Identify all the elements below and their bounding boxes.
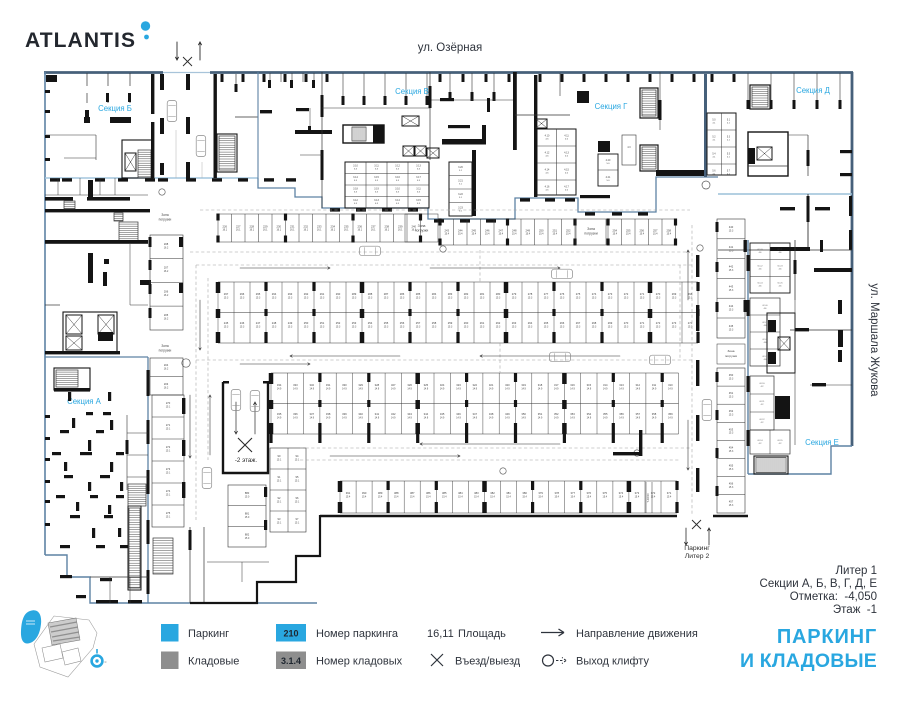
svg-text:15.3: 15.3 <box>672 298 677 300</box>
svg-text:281: 281 <box>480 292 485 296</box>
svg-text:15.3: 15.3 <box>336 298 341 300</box>
svg-text:16.2: 16.2 <box>164 271 169 273</box>
svg-text:311: 311 <box>652 383 657 387</box>
svg-text:15.0: 15.0 <box>245 497 250 499</box>
svg-text:375: 375 <box>603 491 608 495</box>
svg-text:15.3: 15.3 <box>352 327 357 329</box>
svg-text:442: 442 <box>729 265 734 269</box>
svg-text:Номер кладовых: Номер кладовых <box>316 656 403 668</box>
svg-text:15.3: 15.3 <box>336 327 341 329</box>
svg-text:278: 278 <box>528 292 533 296</box>
svg-text:15.4: 15.4 <box>566 233 571 236</box>
svg-text:248: 248 <box>272 321 277 325</box>
svg-text:15.3: 15.3 <box>352 298 357 300</box>
svg-text:3.21: 3.21 <box>458 180 463 183</box>
svg-text:15.3: 15.3 <box>416 298 421 300</box>
svg-text:386: 386 <box>426 491 431 495</box>
svg-text:15.1: 15.1 <box>277 523 282 525</box>
svg-text:342: 342 <box>391 412 396 416</box>
svg-text:206: 206 <box>164 289 169 293</box>
svg-text:267: 267 <box>576 321 581 325</box>
svg-text:323: 323 <box>456 383 461 387</box>
svg-text:15.3: 15.3 <box>729 415 734 417</box>
svg-text:15.3: 15.3 <box>640 298 645 300</box>
svg-text:4.12: 4.12 <box>545 152 550 155</box>
svg-text:16.1: 16.1 <box>357 229 362 232</box>
svg-text:347: 347 <box>473 412 478 416</box>
svg-text:15.4: 15.4 <box>539 233 544 236</box>
svg-text:291: 291 <box>320 292 325 296</box>
svg-text:15.4: 15.4 <box>471 233 476 236</box>
svg-text:3.20: 3.20 <box>458 166 463 169</box>
svg-text:15.3: 15.3 <box>544 327 549 329</box>
svg-text:444: 444 <box>729 304 734 308</box>
svg-text:Паркинг: Паркинг <box>188 628 229 640</box>
svg-text:15.4: 15.4 <box>474 497 479 499</box>
svg-text:274: 274 <box>592 292 597 296</box>
svg-text:451: 451 <box>729 391 734 395</box>
svg-text:16.1: 16.1 <box>222 229 227 232</box>
svg-text:15.3: 15.3 <box>544 298 549 300</box>
svg-text:275: 275 <box>166 511 171 515</box>
svg-text:15.4: 15.4 <box>410 497 415 499</box>
svg-text:320: 320 <box>505 383 510 387</box>
svg-text:15.3: 15.3 <box>656 327 661 329</box>
svg-text:15.3: 15.3 <box>416 327 421 329</box>
svg-text:14.9: 14.9 <box>424 389 429 391</box>
svg-text:335: 335 <box>277 412 282 416</box>
svg-text:погрузки: погрузки <box>159 349 172 353</box>
svg-text:4.13: 4.13 <box>564 152 569 155</box>
svg-text:15.3: 15.3 <box>656 298 661 300</box>
svg-text:379: 379 <box>538 491 543 495</box>
svg-text:292: 292 <box>304 292 309 296</box>
svg-text:Зона: Зона <box>161 344 168 348</box>
svg-text:15.4: 15.4 <box>442 497 447 499</box>
svg-text:455: 455 <box>729 464 734 468</box>
svg-text:14.9: 14.9 <box>668 418 673 420</box>
svg-text:15.3: 15.3 <box>448 327 453 329</box>
svg-text:285: 285 <box>416 292 421 296</box>
svg-text:ПАРКИНГ: ПАРКИНГ <box>777 626 877 648</box>
svg-text:15.4: 15.4 <box>506 497 511 499</box>
svg-text:15.4: 15.4 <box>603 497 608 499</box>
svg-text:391: 391 <box>346 491 351 495</box>
svg-text:259: 259 <box>448 321 453 325</box>
svg-text:14.9: 14.9 <box>554 418 559 420</box>
svg-text:6.1.6: 6.1.6 <box>763 305 769 307</box>
svg-text:16.1: 16.1 <box>384 229 389 232</box>
svg-text:16.1: 16.1 <box>290 229 295 232</box>
svg-text:14.9: 14.9 <box>587 418 592 420</box>
svg-text:15.3: 15.3 <box>464 298 469 300</box>
svg-text:204: 204 <box>164 363 169 367</box>
svg-text:445: 445 <box>729 324 734 328</box>
svg-text:269: 269 <box>608 321 613 325</box>
svg-text:15.3: 15.3 <box>729 310 734 312</box>
svg-text:15.3: 15.3 <box>272 327 277 329</box>
svg-text:310: 310 <box>668 383 673 387</box>
svg-text:16.1: 16.1 <box>249 229 254 232</box>
svg-text:358: 358 <box>652 412 657 416</box>
svg-text:15.1: 15.1 <box>166 473 171 475</box>
svg-text:Секции А, Б, В, Г, Д, Е: Секции А, Б, В, Г, Д, Е <box>760 578 878 590</box>
svg-text:284: 284 <box>432 292 437 296</box>
svg-text:14.9: 14.9 <box>538 389 543 391</box>
svg-text:15.4: 15.4 <box>512 233 517 236</box>
svg-text:Выход клифту: Выход клифту <box>576 656 649 668</box>
svg-text:14.9: 14.9 <box>603 389 608 391</box>
svg-text:294: 294 <box>272 292 277 296</box>
svg-text:289: 289 <box>352 292 357 296</box>
svg-text:Секция Д: Секция Д <box>796 86 831 95</box>
svg-text:3.18: 3.18 <box>353 188 358 191</box>
svg-text:334: 334 <box>277 383 282 387</box>
svg-text:340: 340 <box>358 412 363 416</box>
svg-text:313: 313 <box>619 383 624 387</box>
svg-text:288: 288 <box>368 292 373 296</box>
svg-text:4.14: 4.14 <box>545 169 550 172</box>
svg-text:15.0: 15.0 <box>245 538 250 540</box>
svg-text:276: 276 <box>560 292 565 296</box>
svg-text:15.3: 15.3 <box>608 298 613 300</box>
svg-text:14.9: 14.9 <box>489 418 494 420</box>
svg-text:14.9: 14.9 <box>636 418 641 420</box>
svg-text:6.1.0: 6.1.0 <box>758 249 764 251</box>
svg-text:14.9: 14.9 <box>538 418 543 420</box>
svg-text:15.4: 15.4 <box>426 497 431 499</box>
svg-text:325: 325 <box>424 383 429 387</box>
svg-text:15.1: 15.1 <box>166 495 171 497</box>
svg-text:16.1: 16.1 <box>236 229 241 232</box>
svg-text:15.3: 15.3 <box>368 327 373 329</box>
svg-text:14.9: 14.9 <box>293 418 298 420</box>
svg-text:погрузки: погрузки <box>584 232 598 236</box>
svg-text:266: 266 <box>560 321 565 325</box>
svg-text:3.16: 3.16 <box>395 176 400 179</box>
svg-text:14.9: 14.9 <box>505 389 510 391</box>
svg-text:4.21: 4.21 <box>606 176 611 179</box>
svg-text:205: 205 <box>164 313 169 317</box>
svg-text:15.3: 15.3 <box>640 327 645 329</box>
svg-text:260: 260 <box>464 321 469 325</box>
svg-text:384: 384 <box>458 491 463 495</box>
svg-text:207: 207 <box>164 266 169 270</box>
svg-text:261: 261 <box>480 321 485 325</box>
svg-text:Номер паркинга: Номер паркинга <box>316 628 399 640</box>
svg-text:14.9: 14.9 <box>587 389 592 391</box>
svg-text:15.3: 15.3 <box>480 327 485 329</box>
svg-text:312: 312 <box>636 383 641 387</box>
svg-text:254: 254 <box>368 321 373 325</box>
svg-text:15.3: 15.3 <box>672 327 677 329</box>
svg-text:3.12: 3.12 <box>395 165 400 168</box>
svg-text:283: 283 <box>448 292 453 296</box>
svg-text:16.2: 16.2 <box>164 248 169 250</box>
svg-text:344: 344 <box>424 412 429 416</box>
svg-text:270: 270 <box>166 401 171 405</box>
svg-text:3.13: 3.13 <box>416 165 421 168</box>
svg-text:203: 203 <box>164 382 169 386</box>
svg-text:324: 324 <box>440 383 445 387</box>
svg-text:Направление движения: Направление движения <box>576 628 698 640</box>
svg-text:6.1.2: 6.1.2 <box>758 266 764 268</box>
svg-text:Въезд/выезд: Въезд/выезд <box>455 656 521 668</box>
svg-text:15.3: 15.3 <box>288 298 293 300</box>
svg-text:452: 452 <box>729 409 734 413</box>
svg-text:4.17: 4.17 <box>564 186 569 189</box>
svg-text:372: 372 <box>651 491 656 495</box>
svg-text:Т-ХОЗО: Т-ХОЗО <box>647 493 650 502</box>
svg-text:Зона: Зона <box>418 224 426 228</box>
svg-text:381: 381 <box>506 491 511 495</box>
svg-text:Площадь: Площадь <box>458 628 506 640</box>
svg-text:погрузки: погрузки <box>159 218 172 222</box>
svg-text:Этаж -1: Этаж -1 <box>833 604 877 616</box>
svg-text:15.3: 15.3 <box>304 327 309 329</box>
svg-text:328: 328 <box>375 383 380 387</box>
svg-text:Литер 2: Литер 2 <box>685 553 710 560</box>
svg-text:265: 265 <box>544 321 549 325</box>
svg-text:262: 262 <box>496 321 501 325</box>
svg-text:345: 345 <box>440 412 445 416</box>
svg-text:15.1: 15.1 <box>295 460 300 462</box>
svg-text:380: 380 <box>522 491 527 495</box>
svg-text:14.9: 14.9 <box>619 418 624 420</box>
svg-text:15.3: 15.3 <box>729 433 734 435</box>
svg-text:336: 336 <box>293 412 298 416</box>
svg-text:257: 257 <box>416 321 421 325</box>
svg-text:371: 371 <box>667 491 672 495</box>
svg-text:4.15: 4.15 <box>564 169 569 172</box>
svg-text:16.1: 16.1 <box>398 229 403 232</box>
svg-text:880: 880 <box>245 491 250 495</box>
svg-text:881: 881 <box>245 512 250 516</box>
svg-text:14.9: 14.9 <box>489 389 494 391</box>
svg-text:354: 354 <box>587 412 592 416</box>
svg-text:3.13: 3.13 <box>374 199 379 202</box>
svg-text:Зона: Зона <box>727 349 734 353</box>
svg-text:15.1: 15.1 <box>166 407 171 409</box>
svg-text:15.4: 15.4 <box>490 497 495 499</box>
svg-text:6.2.5: 6.2.5 <box>778 440 784 442</box>
svg-text:271: 271 <box>166 423 171 427</box>
svg-text:6.1.3: 6.1.3 <box>778 266 784 268</box>
svg-text:258: 258 <box>432 321 437 325</box>
svg-text:296: 296 <box>240 292 245 296</box>
svg-text:286: 286 <box>400 292 405 296</box>
svg-text:329: 329 <box>358 383 363 387</box>
svg-text:356: 356 <box>619 412 624 416</box>
svg-text:14.9: 14.9 <box>473 389 478 391</box>
svg-text:15.3: 15.3 <box>432 327 437 329</box>
svg-text:15.4: 15.4 <box>667 497 672 499</box>
svg-text:15.3: 15.3 <box>729 270 734 272</box>
svg-text:14.9: 14.9 <box>277 389 282 391</box>
svg-text:339: 339 <box>342 412 347 416</box>
svg-text:15.3: 15.3 <box>576 327 581 329</box>
svg-text:268: 268 <box>592 321 597 325</box>
svg-text:14.9: 14.9 <box>636 389 641 391</box>
svg-text:350: 350 <box>521 412 526 416</box>
svg-text:14.9: 14.9 <box>326 389 331 391</box>
svg-text:314: 314 <box>603 383 608 387</box>
svg-text:279: 279 <box>512 292 517 296</box>
svg-text:272: 272 <box>656 321 661 325</box>
svg-text:15.3: 15.3 <box>624 298 629 300</box>
svg-text:263: 263 <box>512 321 517 325</box>
svg-text:15.3: 15.3 <box>256 327 261 329</box>
svg-text:3.14: 3.14 <box>395 199 400 202</box>
svg-text:15.3: 15.3 <box>729 469 734 471</box>
svg-text:15.4: 15.4 <box>651 497 656 499</box>
svg-text:14.9: 14.9 <box>554 389 559 391</box>
svg-text:353: 353 <box>570 412 575 416</box>
svg-text:16.1: 16.1 <box>330 229 335 232</box>
svg-text:270: 270 <box>624 321 629 325</box>
svg-text:Секция Е: Секция Е <box>805 438 839 447</box>
svg-text:15.1: 15.1 <box>295 481 300 483</box>
svg-text:14.9: 14.9 <box>375 389 380 391</box>
svg-text:14.9: 14.9 <box>391 418 396 420</box>
svg-text:15.3: 15.3 <box>400 298 405 300</box>
svg-text:385: 385 <box>442 491 447 495</box>
svg-text:3.17: 3.17 <box>416 176 421 179</box>
svg-text:6.2.0: 6.2.0 <box>760 383 766 385</box>
svg-text:3.11: 3.11 <box>374 165 379 168</box>
svg-text:282: 282 <box>464 292 469 296</box>
svg-text:6.1.5: 6.1.5 <box>778 282 784 284</box>
svg-text:378: 378 <box>554 491 559 495</box>
svg-text:274: 274 <box>166 489 171 493</box>
svg-text:14.9: 14.9 <box>440 389 445 391</box>
svg-text:322: 322 <box>473 383 478 387</box>
svg-text:Секция В: Секция В <box>395 87 429 96</box>
svg-text:245: 245 <box>224 321 229 325</box>
svg-text:14.9: 14.9 <box>652 389 657 391</box>
svg-text:450: 450 <box>729 373 734 377</box>
svg-text:15.3: 15.3 <box>432 298 437 300</box>
svg-text:14.9: 14.9 <box>440 418 445 420</box>
svg-text:14.9: 14.9 <box>521 418 526 420</box>
svg-text:15.4: 15.4 <box>587 497 592 499</box>
svg-text:271: 271 <box>640 292 645 296</box>
svg-text:15.3: 15.3 <box>729 451 734 453</box>
svg-text:16.1: 16.1 <box>344 229 349 232</box>
svg-text:15.3: 15.3 <box>729 505 734 507</box>
svg-text:14.9: 14.9 <box>521 389 526 391</box>
svg-text:14.9: 14.9 <box>619 389 624 391</box>
svg-text:15.3: 15.3 <box>320 327 325 329</box>
svg-text:15.3: 15.3 <box>512 298 517 300</box>
svg-text:Секция Г: Секция Г <box>595 102 629 111</box>
svg-text:14.9: 14.9 <box>358 418 363 420</box>
svg-text:3.14: 3.14 <box>353 176 358 179</box>
svg-text:295: 295 <box>256 292 261 296</box>
svg-text:321: 321 <box>489 383 494 387</box>
svg-text:346: 346 <box>456 412 461 416</box>
svg-text:15.4: 15.4 <box>639 233 644 236</box>
svg-text:3.22: 3.22 <box>458 193 463 196</box>
svg-text:15.3: 15.3 <box>464 327 469 329</box>
svg-text:15.4: 15.4 <box>666 233 671 236</box>
svg-text:Зона: Зона <box>587 227 595 231</box>
svg-text:373: 373 <box>635 491 640 495</box>
svg-text:15.3: 15.3 <box>224 327 229 329</box>
svg-text:441: 441 <box>729 245 734 249</box>
svg-text:15.4: 15.4 <box>653 233 658 236</box>
svg-text:319: 319 <box>521 383 526 387</box>
svg-text:14.9: 14.9 <box>424 418 429 420</box>
svg-text:16.1: 16.1 <box>276 229 281 232</box>
svg-text:882: 882 <box>245 532 250 536</box>
svg-text:15.3: 15.3 <box>729 378 734 380</box>
svg-text:389: 389 <box>378 491 383 495</box>
svg-text:290: 290 <box>336 292 341 296</box>
svg-text:Зона: Зона <box>161 213 168 217</box>
svg-text:15.4: 15.4 <box>378 497 383 499</box>
svg-text:383: 383 <box>474 491 479 495</box>
svg-text:275: 275 <box>576 292 581 296</box>
svg-text:15.3: 15.3 <box>288 327 293 329</box>
svg-text:И КЛАДОВЫЕ: И КЛАДОВЫЕ <box>740 650 877 672</box>
svg-text:14.9: 14.9 <box>342 389 347 391</box>
svg-text:255: 255 <box>384 321 389 325</box>
svg-text:246: 246 <box>240 321 245 325</box>
svg-text:3.10: 3.10 <box>395 188 400 191</box>
svg-text:15.4: 15.4 <box>635 497 640 499</box>
svg-text:-2 этаж.: -2 этаж. <box>235 457 258 464</box>
svg-text:457: 457 <box>729 500 734 504</box>
svg-text:3.23: 3.23 <box>458 207 463 210</box>
svg-text:14.9: 14.9 <box>342 418 347 420</box>
svg-text:15.4: 15.4 <box>612 233 617 236</box>
svg-text:15.3: 15.3 <box>560 327 565 329</box>
svg-text:15.3: 15.3 <box>560 298 565 300</box>
svg-text:357: 357 <box>636 412 641 416</box>
svg-text:297: 297 <box>224 292 229 296</box>
svg-text:с: с <box>105 659 107 664</box>
svg-text:15.3: 15.3 <box>320 298 325 300</box>
svg-text:277: 277 <box>544 292 549 296</box>
svg-text:332: 332 <box>310 383 315 387</box>
svg-text:15.4: 15.4 <box>444 233 449 236</box>
svg-text:погрузки: погрузки <box>415 229 429 233</box>
svg-text:погрузки: погрузки <box>725 354 738 358</box>
svg-text:269: 269 <box>672 292 677 296</box>
svg-text:15.3: 15.3 <box>729 250 734 252</box>
svg-text:15.1: 15.1 <box>277 460 282 462</box>
svg-text:4.11: 4.11 <box>564 135 569 138</box>
svg-text:251: 251 <box>320 321 325 325</box>
svg-text:15.4: 15.4 <box>552 233 557 236</box>
svg-text:6.1.4: 6.1.4 <box>758 282 764 284</box>
svg-text:15.1: 15.1 <box>295 523 300 525</box>
svg-text:6.2.2: 6.2.2 <box>760 419 766 421</box>
svg-text:208: 208 <box>164 242 169 246</box>
svg-text:15.4: 15.4 <box>570 497 575 499</box>
svg-text:15.1: 15.1 <box>277 481 282 483</box>
svg-text:333: 333 <box>293 383 298 387</box>
svg-text:14.9: 14.9 <box>603 418 608 420</box>
svg-text:374: 374 <box>619 491 624 495</box>
svg-text:249: 249 <box>288 321 293 325</box>
svg-text:6.2.4: 6.2.4 <box>758 440 764 442</box>
svg-text:15.4: 15.4 <box>525 233 530 236</box>
svg-text:15.3: 15.3 <box>368 298 373 300</box>
svg-text:15.4: 15.4 <box>554 497 559 499</box>
svg-text:6.2.1: 6.2.1 <box>760 401 766 403</box>
